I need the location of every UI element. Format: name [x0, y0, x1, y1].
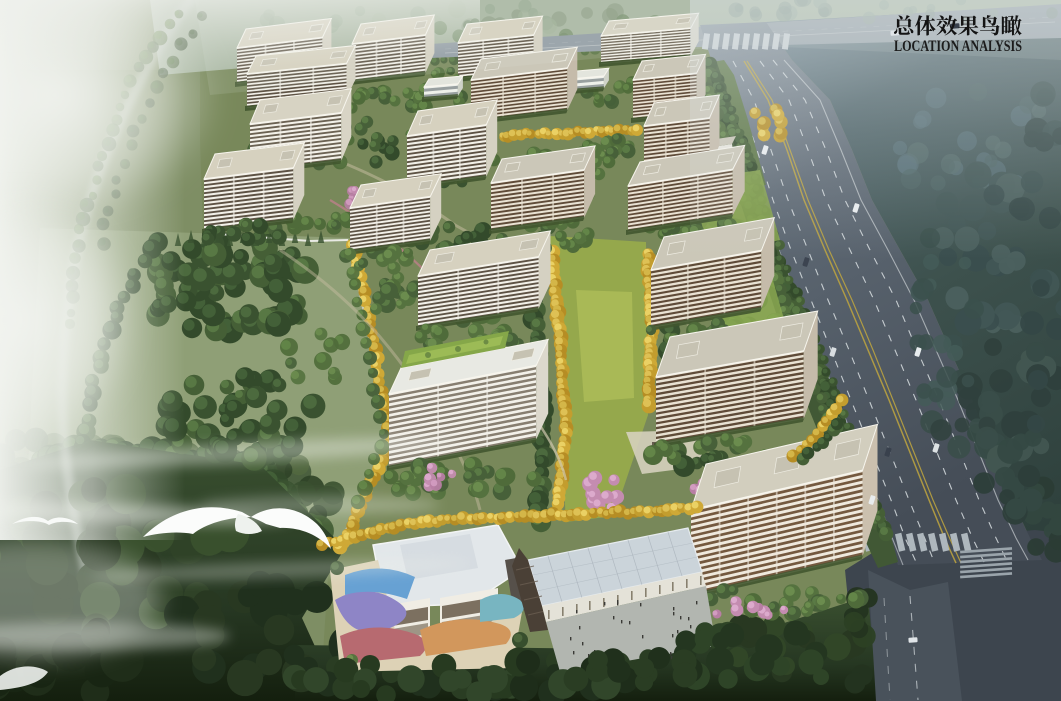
svg-text:LOCATION ANALYSIS: LOCATION ANALYSIS [894, 38, 1022, 55]
